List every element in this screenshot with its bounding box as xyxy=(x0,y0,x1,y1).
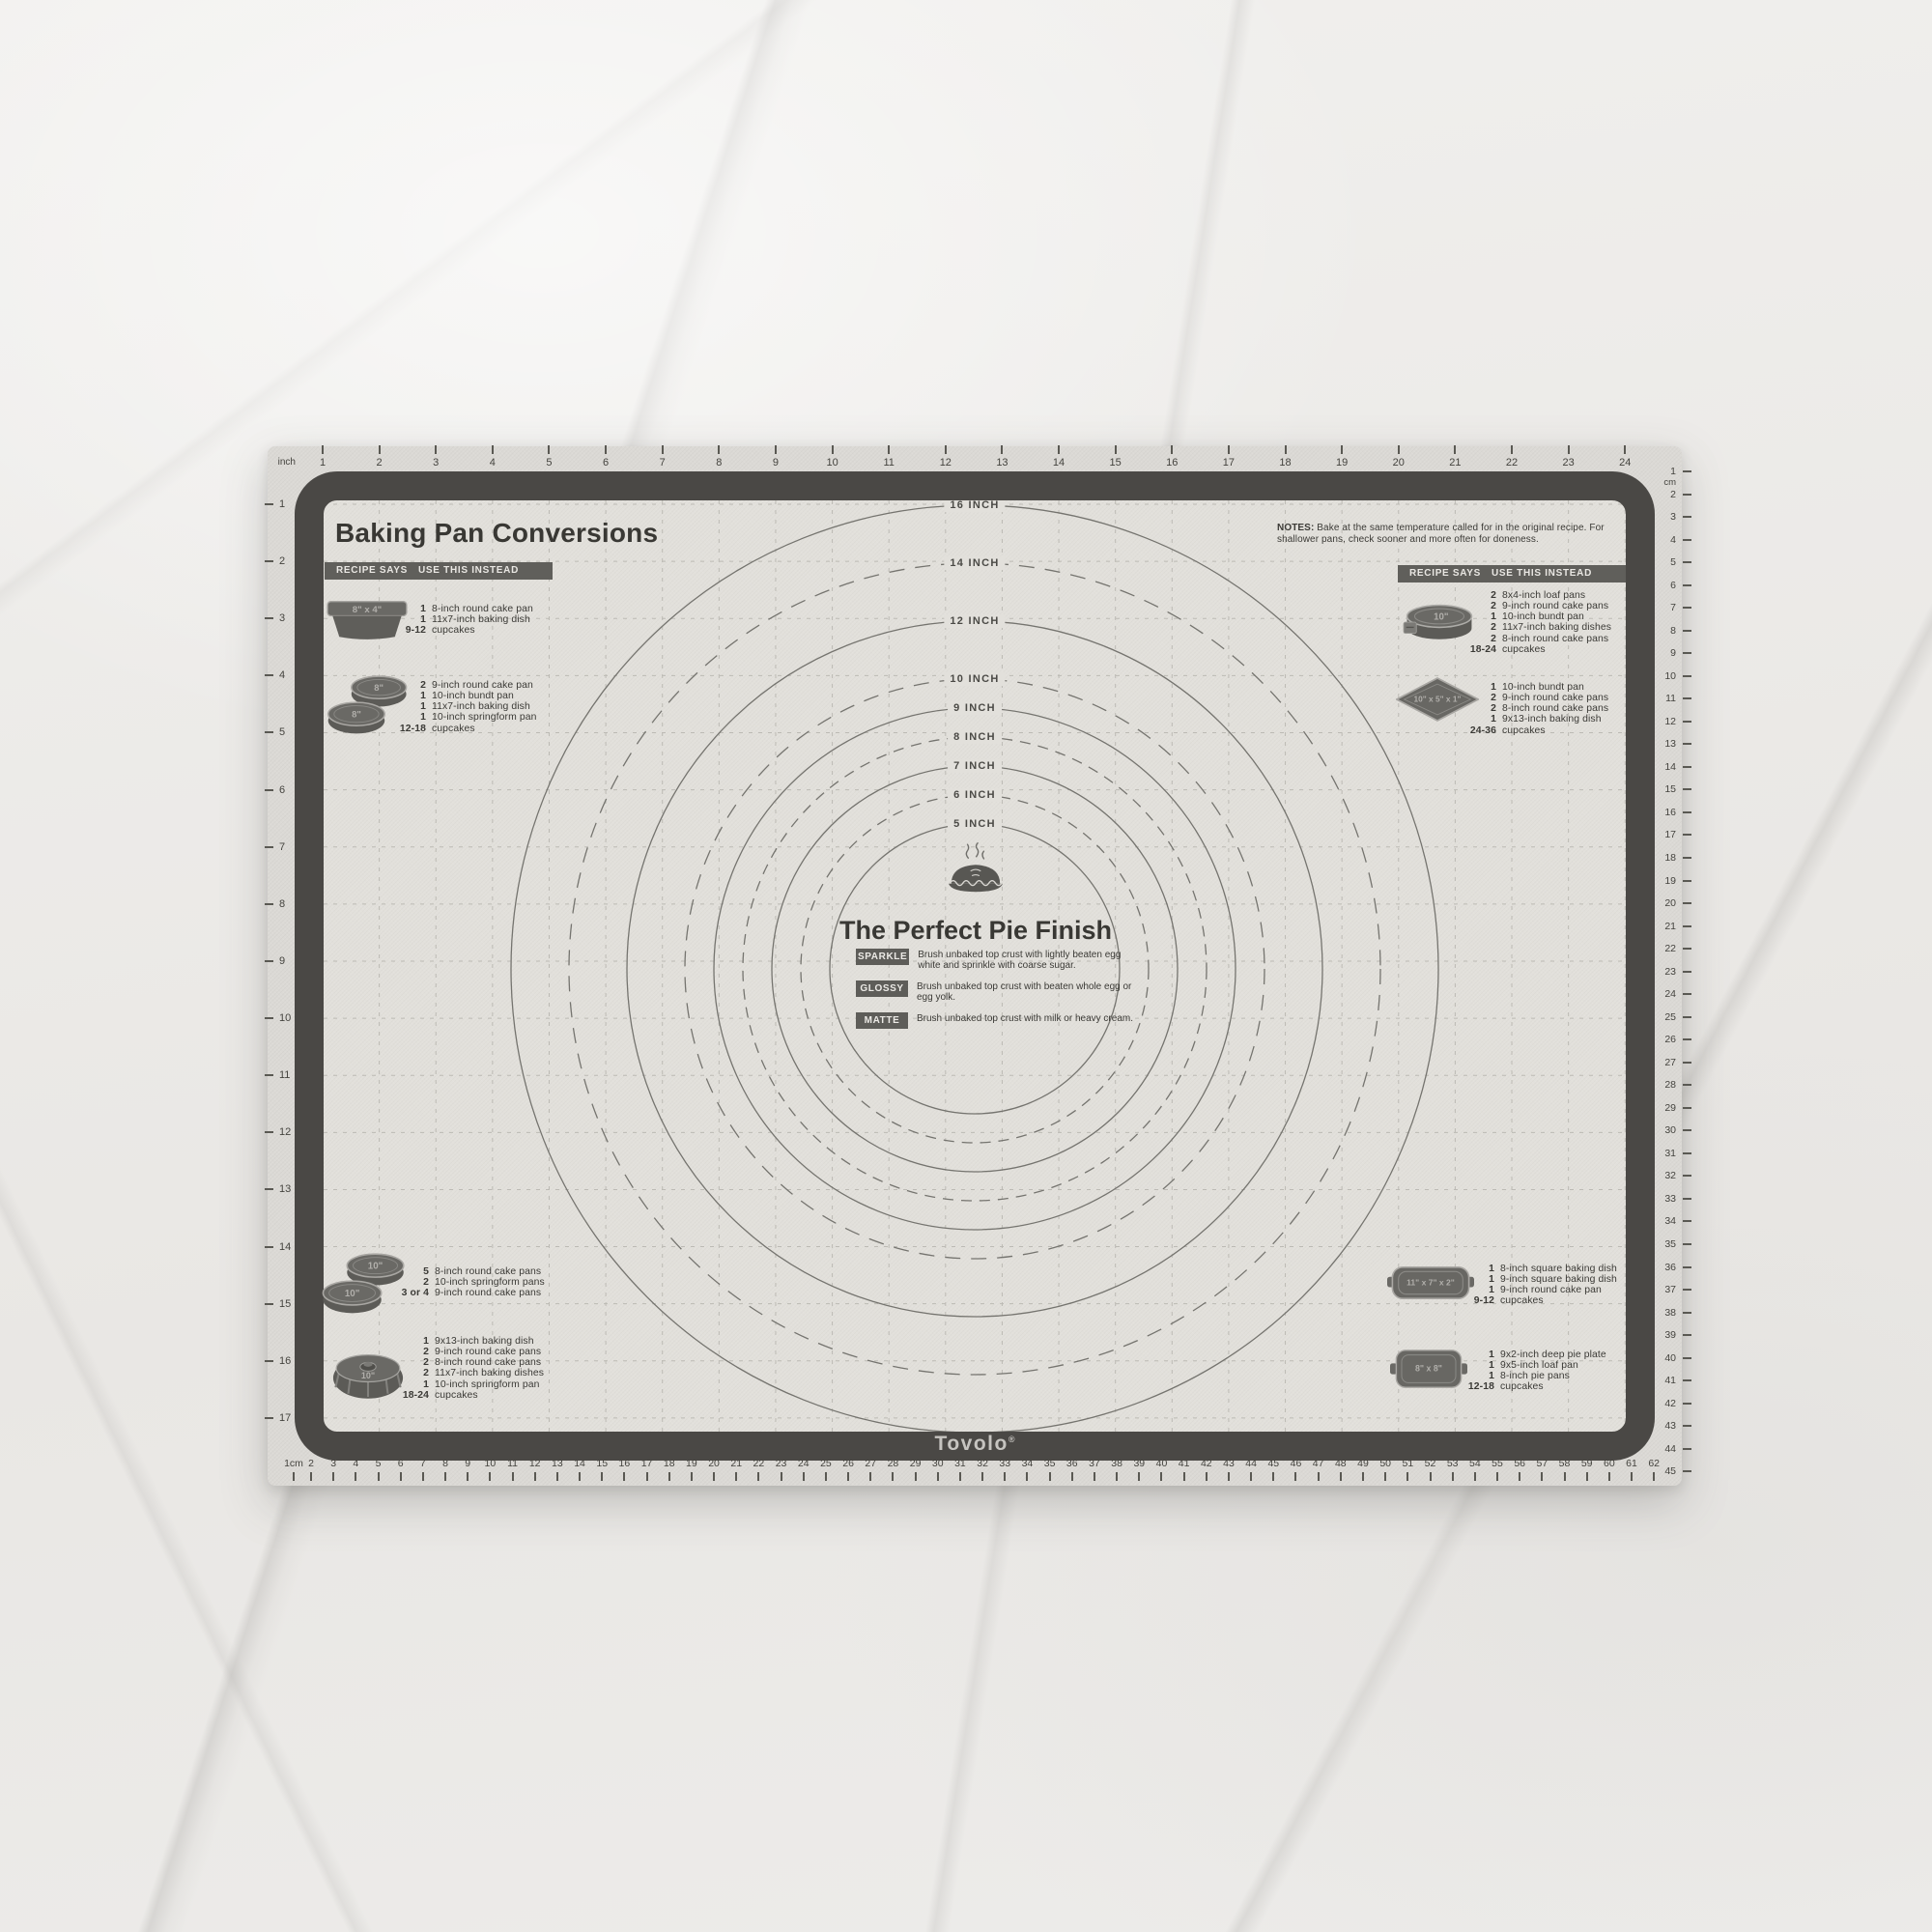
ruler-tick xyxy=(1683,721,1691,723)
ruler-tick xyxy=(355,1472,356,1481)
ruler-number: 1 xyxy=(1647,466,1676,477)
ruler-tick xyxy=(1171,445,1173,454)
ruler-tick xyxy=(265,1417,273,1419)
ruler-tick xyxy=(265,1188,273,1190)
ruler-number: 7 xyxy=(648,457,677,469)
ruler-tick xyxy=(1683,834,1691,836)
quantity: 9-12 xyxy=(391,625,426,636)
ruler-tick xyxy=(265,1246,273,1248)
ruler-tick xyxy=(1683,652,1691,654)
ruler-tick xyxy=(981,1472,983,1481)
quantity: 18-24 xyxy=(1450,644,1496,655)
conversion-row: 211x7-inch baking dishes xyxy=(379,1368,544,1378)
pan-label: 8-inch round cake pans xyxy=(435,1357,541,1368)
svg-text:10": 10" xyxy=(345,1289,359,1299)
conversion-row: 58-inch round cake pans xyxy=(379,1266,545,1277)
ruler-tick xyxy=(662,445,664,454)
ruler-number: 15 xyxy=(1647,783,1676,795)
ruler-tick xyxy=(1683,1425,1691,1427)
ruler-number: 62 xyxy=(1640,1458,1667,1469)
brand-logo: Tovolo® xyxy=(878,1433,1071,1456)
ruler-number: 37 xyxy=(1647,1284,1676,1295)
ruler-tick xyxy=(1683,675,1691,677)
quantity: 2 xyxy=(1450,590,1496,601)
ruler-tick xyxy=(1683,1038,1691,1040)
ruler-tick xyxy=(803,1472,805,1481)
quantity: 1 xyxy=(379,1379,429,1390)
ruler-number: 2 xyxy=(1647,489,1676,500)
pan-label: 9-inch round cake pan xyxy=(1500,1285,1602,1295)
finish-tag: GLOSSY xyxy=(856,980,908,997)
conversion-row: 19x13-inch baking dish xyxy=(379,1336,544,1347)
ruler-tick xyxy=(489,1472,491,1481)
baking-pan-conversions-title: Baking Pan Conversions xyxy=(335,518,658,549)
ruler-number: 21 xyxy=(1647,921,1676,932)
ruler-tick xyxy=(1340,1472,1342,1481)
conversion-row: 3 or 49-inch round cake pans xyxy=(379,1288,545,1298)
ruler-number: 13 xyxy=(279,1183,302,1195)
ruler-number: 40 xyxy=(1647,1352,1676,1364)
ruler-number: 22 xyxy=(1647,943,1676,954)
ruler-tick xyxy=(1160,1472,1162,1481)
ruler-tick xyxy=(1683,697,1691,699)
ruler-tick xyxy=(1094,1472,1095,1481)
ruler-tick xyxy=(668,1472,670,1481)
ruler-number: 18 xyxy=(1271,457,1300,469)
ruler-tick xyxy=(1683,857,1691,859)
quantity: 1 xyxy=(391,701,426,712)
ruler-number: 3 xyxy=(421,457,450,469)
ruler-tick xyxy=(1496,1472,1498,1481)
ruler-number: 35 xyxy=(1647,1238,1676,1250)
ruler-number: 25 xyxy=(1647,1011,1676,1023)
pan-label: 8-inch round cake pans xyxy=(1502,703,1608,714)
ruler-tick xyxy=(467,1472,469,1481)
finish-description: Brush unbaked top crust with lightly bea… xyxy=(918,949,1142,972)
ruler-number: 5 xyxy=(534,457,563,469)
ruler-number: 34 xyxy=(1647,1215,1676,1227)
ruler-tick xyxy=(1683,1266,1691,1268)
ruler-number: 42 xyxy=(1647,1398,1676,1409)
ruler-tick xyxy=(1564,1472,1566,1481)
finish-row: MATTEBrush unbaked top crust with milk o… xyxy=(856,1012,1142,1029)
ruler-tick xyxy=(1511,445,1513,454)
ruler-tick xyxy=(1683,1152,1691,1154)
ruler-number: 10 xyxy=(818,457,847,469)
ruler-number: 13 xyxy=(1647,738,1676,750)
ruler-number: 23 xyxy=(1554,457,1583,469)
ruler-number: 17 xyxy=(1214,457,1243,469)
svg-text:10": 10" xyxy=(1434,611,1448,622)
ruler-tick xyxy=(265,560,273,562)
ruler-tick xyxy=(1608,1472,1610,1481)
ruler-tick xyxy=(265,731,273,733)
ruler-number: 2 xyxy=(365,457,394,469)
conversion-entry: 28x4-inch loaf pans29-inch round cake pa… xyxy=(1450,590,1611,655)
conversion-row: 29-inch round cake pans xyxy=(1450,693,1608,703)
pan-label: 9-inch round cake pans xyxy=(435,1347,541,1357)
ruler-tick xyxy=(265,846,273,848)
ruler-number: 3 xyxy=(1647,511,1676,523)
ruler-tick xyxy=(1430,1472,1432,1481)
pie-finish-list: SPARKLEBrush unbaked top crust with ligh… xyxy=(856,949,1142,1037)
ruler-number: 44 xyxy=(1647,1443,1676,1455)
quantity: 2 xyxy=(1450,601,1496,611)
ruler-number: 36 xyxy=(1647,1262,1676,1273)
ruler-number: 6 xyxy=(591,457,620,469)
finish-description: Brush unbaked top crust with beaten whol… xyxy=(917,980,1142,1004)
ruler-number: 11 xyxy=(279,1069,302,1081)
ruler-number: 31 xyxy=(1647,1148,1676,1159)
ruler-number: 9 xyxy=(1647,647,1676,659)
ruler-tick xyxy=(1683,470,1691,472)
pan-label: 10-inch bundt pan xyxy=(1502,611,1584,622)
ruler-tick xyxy=(1519,1472,1520,1481)
pan-label: cupcakes xyxy=(435,1390,478,1401)
pan-label: 9-inch square baking dish xyxy=(1500,1274,1617,1285)
ruler-tick xyxy=(310,1472,312,1481)
ruler-tick xyxy=(781,1472,782,1481)
quantity: 2 xyxy=(1450,693,1496,703)
ruler-tick xyxy=(556,1472,558,1481)
pan-label: 9x5-inch loaf pan xyxy=(1500,1360,1578,1371)
conversion-row: 19x13-inch baking dish xyxy=(1450,714,1608,724)
use-this-instead-label: USE THIS INSTEAD xyxy=(418,562,519,580)
ruler-tick xyxy=(1683,902,1691,904)
conversion-row: 111x7-inch baking dish xyxy=(391,614,533,625)
inch-unit-label: inch xyxy=(259,457,296,469)
ruler-number: 3 xyxy=(279,612,302,624)
conversion-entry: 18-inch square baking dish19-inch square… xyxy=(1452,1264,1617,1307)
ruler-tick xyxy=(265,960,273,962)
conversion-entry: 29-inch round cake pan110-inch bundt pan… xyxy=(391,680,536,734)
conversion-row: 110-inch springform pan xyxy=(379,1379,544,1390)
ruler-tick xyxy=(1683,788,1691,790)
ruler-tick xyxy=(1683,1107,1691,1109)
ruler-tick xyxy=(1683,948,1691,950)
ruler-tick xyxy=(1683,1379,1691,1381)
finish-row: SPARKLEBrush unbaked top crust with ligh… xyxy=(856,949,1142,972)
ruler-tick xyxy=(1318,1472,1320,1481)
quantity: 2 xyxy=(379,1368,429,1378)
ruler-number: 18 xyxy=(1647,852,1676,864)
conversion-row: 19-inch square baking dish xyxy=(1452,1274,1617,1285)
ruler-tick xyxy=(1586,1472,1588,1481)
ruler-tick xyxy=(1406,1472,1408,1481)
ruler-number: 7 xyxy=(279,841,302,853)
quantity: 1 xyxy=(391,712,426,723)
ruler-number: 6 xyxy=(279,784,302,796)
pan-label: cupcakes xyxy=(432,724,475,734)
ruler-tick xyxy=(378,1472,380,1481)
conversion-row: 28-inch round cake pans xyxy=(379,1357,544,1368)
ruler-tick xyxy=(1683,1357,1691,1359)
conversion-row: 18-inch pie pans xyxy=(1452,1371,1606,1381)
ruler-tick xyxy=(265,617,273,619)
ruler-tick xyxy=(735,1472,737,1481)
conversion-row: 29-inch round cake pans xyxy=(1450,601,1611,611)
ruler-tick xyxy=(265,1074,273,1076)
ruler-tick xyxy=(605,445,607,454)
ruler-tick xyxy=(1183,1472,1185,1481)
ruler-tick xyxy=(1683,1403,1691,1405)
pan-label: cupcakes xyxy=(1500,1381,1544,1392)
ruler-tick xyxy=(422,1472,424,1481)
conversion-row: 12-18cupcakes xyxy=(391,724,536,734)
ruler-tick xyxy=(847,1472,849,1481)
ruler-tick xyxy=(1683,1084,1691,1086)
conversion-entry: 19x2-inch deep pie plate19x5-inch loaf p… xyxy=(1452,1350,1606,1393)
pie-finish-title: The Perfect Pie Finish xyxy=(835,916,1117,946)
ruler-tick xyxy=(1049,1472,1051,1481)
quantity: 1 xyxy=(391,614,426,625)
pan-label: 9x2-inch deep pie plate xyxy=(1500,1350,1606,1360)
ruler-number: 9 xyxy=(761,457,790,469)
svg-text:10": 10" xyxy=(361,1371,375,1380)
quantity: 9-12 xyxy=(1452,1295,1494,1306)
ruler-tick xyxy=(293,1472,295,1481)
ruler-tick xyxy=(435,445,437,454)
ruler-number: 2 xyxy=(279,555,302,567)
ruler-number: 16 xyxy=(1157,457,1186,469)
notes-label: NOTES: xyxy=(1277,523,1314,533)
ruler-tick xyxy=(512,1472,514,1481)
conversion-entry: 19x13-inch baking dish29-inch round cake… xyxy=(379,1336,544,1401)
conversion-row: 110-inch bundt pan xyxy=(1450,682,1608,693)
conversion-entry: 18-inch round cake pan111x7-inch baking … xyxy=(391,604,533,636)
ruler-tick xyxy=(400,1472,402,1481)
ruler-tick xyxy=(265,1017,273,1019)
ruler-number: 38 xyxy=(1647,1307,1676,1319)
ruler-number: 20 xyxy=(1384,457,1413,469)
ruler-tick xyxy=(1683,743,1691,745)
conversion-row: 29-inch round cake pan xyxy=(391,680,536,691)
conversion-row: 18-inch square baking dish xyxy=(1452,1264,1617,1274)
ruler-tick xyxy=(1683,1198,1691,1200)
svg-text:11" x 7" x 2": 11" x 7" x 2" xyxy=(1406,1278,1455,1288)
ruler-number: 9 xyxy=(279,955,302,967)
brand-name: Tovolo xyxy=(935,1433,1009,1455)
ruler-tick xyxy=(492,445,494,454)
notes-body: Bake at the same temperature called for … xyxy=(1277,523,1605,545)
ruler-number: 43 xyxy=(1647,1420,1676,1432)
table-header-left: RECIPE SAYS USE THIS INSTEAD xyxy=(325,562,553,580)
ruler-tick xyxy=(623,1472,625,1481)
ruler-number: 10 xyxy=(279,1012,302,1024)
ruler-tick xyxy=(265,1131,273,1133)
ruler-tick xyxy=(1683,607,1691,609)
ruler-number: 27 xyxy=(1647,1057,1676,1068)
pan-label: cupcakes xyxy=(1502,644,1546,655)
conversion-row: 19x5-inch loaf pan xyxy=(1452,1360,1606,1371)
ruler-tick xyxy=(1138,1472,1140,1481)
ruler-tick xyxy=(718,445,720,454)
quantity: 2 xyxy=(379,1277,429,1288)
ruler-tick xyxy=(1294,1472,1296,1481)
ruler-number: 10 xyxy=(1647,670,1676,682)
ruler-number: 16 xyxy=(279,1355,302,1367)
ruler-tick xyxy=(915,1472,917,1481)
ruler-number: 8 xyxy=(704,457,733,469)
ruler-number: 33 xyxy=(1647,1193,1676,1205)
quantity: 2 xyxy=(1450,634,1496,644)
ruler-tick xyxy=(1683,766,1691,768)
ruler-number: 12 xyxy=(1647,716,1676,727)
ruler-tick xyxy=(1683,584,1691,586)
ruler-tick xyxy=(265,903,273,905)
conversion-row: 9-12cupcakes xyxy=(391,625,533,636)
quantity: 1 xyxy=(1450,682,1496,693)
ruler-tick xyxy=(825,1472,827,1481)
conversion-row: 28-inch round cake pans xyxy=(1450,703,1608,714)
conversion-row: 29-inch round cake pans xyxy=(379,1347,544,1357)
recipe-says-label: RECIPE SAYS xyxy=(336,562,408,580)
ruler-tick xyxy=(959,1472,961,1481)
use-this-instead-label: USE THIS INSTEAD xyxy=(1492,565,1592,582)
ruler-number: 8 xyxy=(279,898,302,910)
quantity: 1 xyxy=(1452,1360,1494,1371)
quantity: 2 xyxy=(379,1347,429,1357)
ruler-tick xyxy=(1115,445,1117,454)
pan-label: 10-inch springform pans xyxy=(435,1277,545,1288)
ruler-number: 8 xyxy=(1647,625,1676,637)
ruler-number: 23 xyxy=(1647,966,1676,978)
ruler-tick xyxy=(548,445,550,454)
ruler-tick xyxy=(945,445,947,454)
conversion-row: 24-36cupcakes xyxy=(1450,725,1608,736)
ruler-tick xyxy=(1683,494,1691,496)
pan-label: 8-inch round cake pans xyxy=(1502,634,1608,644)
pan-label: 9x13-inch baking dish xyxy=(1502,714,1602,724)
quantity: 1 xyxy=(1452,1285,1494,1295)
ruler-number: 24 xyxy=(1647,988,1676,1000)
ruler-number: 17 xyxy=(1647,829,1676,840)
pan-label: 9-inch round cake pan xyxy=(432,680,533,691)
ruler-tick xyxy=(646,1472,648,1481)
ruler-number: 6 xyxy=(1647,580,1676,591)
notes-text: NOTES: Bake at the same temperature call… xyxy=(1277,523,1619,545)
quantity: 1 xyxy=(1452,1350,1494,1360)
ruler-number: 1 xyxy=(279,498,302,510)
conversion-row: 19x2-inch deep pie plate xyxy=(1452,1350,1606,1360)
ruler-number: 4 xyxy=(478,457,507,469)
ruler-tick xyxy=(1653,1472,1655,1481)
ruler-tick xyxy=(1058,445,1060,454)
quantity: 1 xyxy=(1450,714,1496,724)
quantity: 12-18 xyxy=(391,724,426,734)
ruler-tick xyxy=(775,445,777,454)
ruler-number: 32 xyxy=(1647,1170,1676,1181)
pan-label: 11x7-inch baking dishes xyxy=(1502,622,1611,633)
quantity: 1 xyxy=(391,691,426,701)
ruler-tick xyxy=(1683,993,1691,995)
pan-label: 11x7-inch baking dishes xyxy=(435,1368,544,1378)
ruler-tick xyxy=(1683,1470,1691,1472)
ruler-tick xyxy=(1071,1472,1073,1481)
conversion-row: 18-inch round cake pan xyxy=(391,604,533,614)
pan-label: 8x4-inch loaf pans xyxy=(1502,590,1585,601)
quantity: 1 xyxy=(1452,1371,1494,1381)
ruler-number: 30 xyxy=(1647,1124,1676,1136)
ruler-tick xyxy=(1683,1129,1691,1131)
pan-label: 9x13-inch baking dish xyxy=(435,1336,534,1347)
ruler-tick xyxy=(1362,1472,1364,1481)
svg-text:8" x 8": 8" x 8" xyxy=(1415,1363,1442,1373)
conversion-row: 210-inch springform pans xyxy=(379,1277,545,1288)
ruler-number: 7 xyxy=(1647,602,1676,613)
ruler-tick xyxy=(332,1472,334,1481)
quantity: 2 xyxy=(1450,622,1496,633)
recipe-says-label: RECIPE SAYS xyxy=(1409,565,1481,582)
ruler-tick xyxy=(1683,561,1691,563)
quantity: 24-36 xyxy=(1450,725,1496,736)
ruler-tick xyxy=(937,1472,939,1481)
ruler-number: 13 xyxy=(987,457,1016,469)
ruler-number: 4 xyxy=(279,669,302,681)
ruler-number: 12 xyxy=(279,1126,302,1138)
ruler-number: 29 xyxy=(1647,1102,1676,1114)
quantity: 3 or 4 xyxy=(379,1288,429,1298)
conversion-row: 19-inch round cake pan xyxy=(1452,1285,1617,1295)
ruler-tick xyxy=(1341,445,1343,454)
pan-label: 11x7-inch baking dish xyxy=(432,701,530,712)
ruler-number: 28 xyxy=(1647,1079,1676,1091)
conversion-row: 18-24cupcakes xyxy=(1450,644,1611,655)
pan-label: 10-inch bundt pan xyxy=(1502,682,1584,693)
pan-label: 8-inch pie pans xyxy=(1500,1371,1570,1381)
ruler-number: 17 xyxy=(279,1412,302,1424)
ruler-number: 20 xyxy=(1647,897,1676,909)
ruler-number: 4 xyxy=(1647,534,1676,546)
ruler-tick xyxy=(1474,1472,1476,1481)
conversion-row: 110-inch springform pan xyxy=(391,712,536,723)
conversion-row: 211x7-inch baking dishes xyxy=(1450,622,1611,633)
ruler-tick xyxy=(1683,539,1691,541)
ruler-number: 12 xyxy=(931,457,960,469)
ruler-tick xyxy=(1004,1472,1006,1481)
ruler-tick xyxy=(534,1472,536,1481)
ruler-number: 15 xyxy=(279,1298,302,1310)
ruler-number: 11 xyxy=(1647,693,1676,704)
pan-label: 9-inch round cake pans xyxy=(435,1288,541,1298)
conversion-entry: 58-inch round cake pans210-inch springfo… xyxy=(379,1266,545,1298)
ruler-tick xyxy=(1683,630,1691,632)
finish-row: GLOSSYBrush unbaked top crust with beate… xyxy=(856,980,1142,1004)
quantity: 2 xyxy=(379,1357,429,1368)
conversion-row: 28x4-inch loaf pans xyxy=(1450,590,1611,601)
pan-label: 8-inch round cake pans xyxy=(435,1266,541,1277)
ruler-number: 39 xyxy=(1647,1329,1676,1341)
ruler-number: 26 xyxy=(1647,1034,1676,1045)
pan-label: 8-inch round cake pan xyxy=(432,604,533,614)
ruler-tick xyxy=(265,789,273,791)
ruler-number: 5 xyxy=(279,726,302,738)
ruler-tick xyxy=(1683,516,1691,518)
pan-label: cupcakes xyxy=(432,625,475,636)
ruler-tick xyxy=(1683,925,1691,927)
pan-label: cupcakes xyxy=(1502,725,1546,736)
ruler-tick xyxy=(1001,445,1003,454)
ruler-tick xyxy=(1272,1472,1274,1481)
quantity: 1 xyxy=(1452,1264,1494,1274)
ruler-tick xyxy=(601,1472,603,1481)
ruler-tick xyxy=(691,1472,693,1481)
ruler-tick xyxy=(265,1360,273,1362)
conversion-row: 12-18cupcakes xyxy=(1452,1381,1606,1392)
svg-text:8": 8" xyxy=(352,710,361,721)
ruler-tick xyxy=(1285,445,1287,454)
ruler-tick xyxy=(1683,1243,1691,1245)
